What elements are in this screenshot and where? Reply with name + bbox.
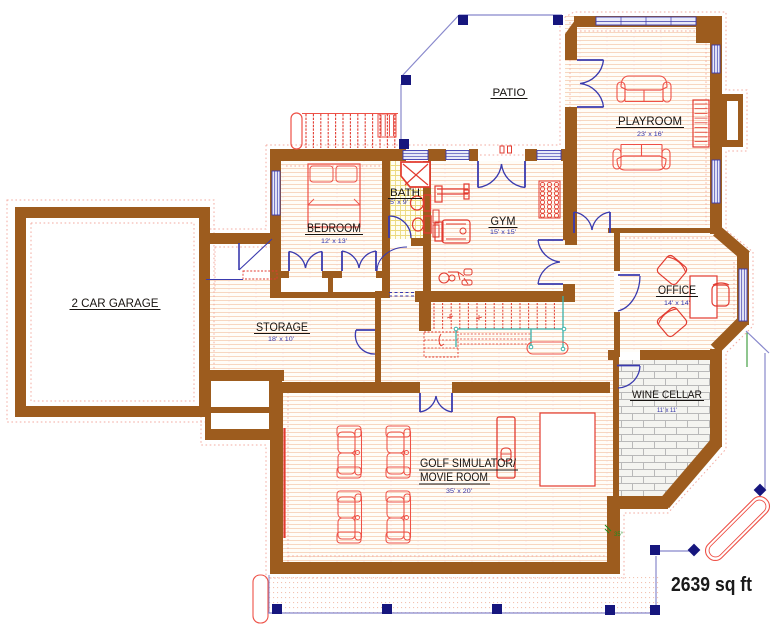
svg-text:OFFICE: OFFICE [658,283,696,297]
svg-text:BEDROOM: BEDROOM [307,221,361,235]
svg-text:11' x 11': 11' x 11' [657,408,677,414]
svg-text:MOVIE ROOM: MOVIE ROOM [420,470,488,484]
svg-text:12' x 13': 12' x 13' [321,238,347,245]
svg-text:15' x 15': 15' x 15' [490,229,516,236]
svg-text:35°: 35° [614,532,624,538]
svg-text:2639 sq ft: 2639 sq ft [671,574,752,596]
svg-text:BATH: BATH [390,187,420,199]
svg-text:PLAYROOM: PLAYROOM [618,114,682,128]
svg-text:5' x 9': 5' x 9' [390,200,408,206]
svg-text:GOLF SIMULATOR/: GOLF SIMULATOR/ [420,456,517,470]
svg-text:WINE CELLAR: WINE CELLAR [632,389,702,401]
svg-text:35' x 20': 35' x 20' [446,488,472,495]
svg-text:GYM: GYM [491,214,516,228]
svg-text:23' x 16': 23' x 16' [637,131,663,138]
svg-text:18' x 10': 18' x 10' [268,336,294,343]
svg-text:PATIO: PATIO [493,87,526,99]
svg-text:14' x 14': 14' x 14' [664,300,690,307]
svg-text:2 CAR GARAGE: 2 CAR GARAGE [72,298,159,310]
svg-text:STORAGE: STORAGE [256,320,308,334]
